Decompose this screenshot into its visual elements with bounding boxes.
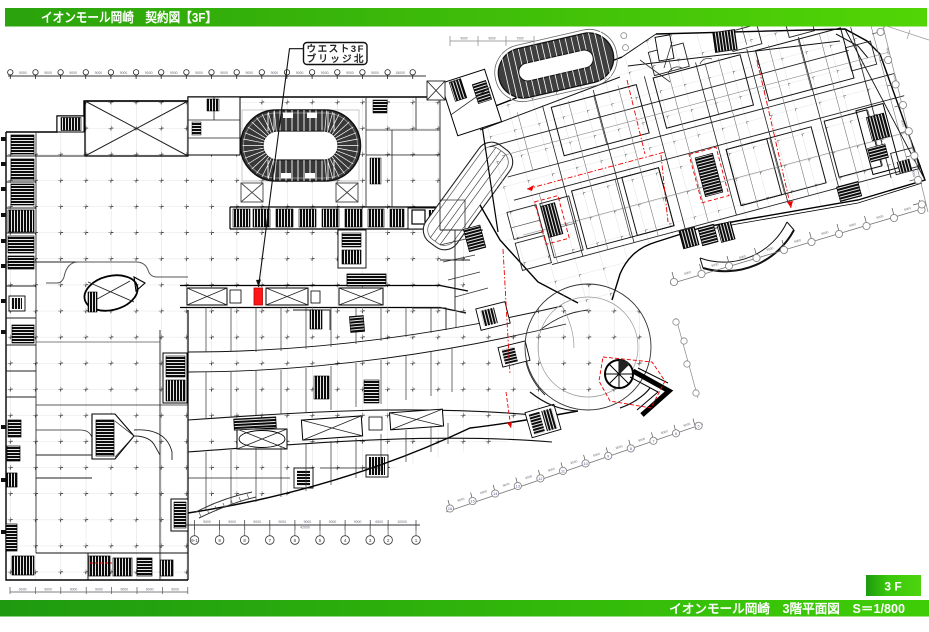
svg-text:9000: 9000: [19, 71, 27, 75]
svg-text:9000: 9000: [253, 520, 261, 524]
svg-text:9000: 9000: [228, 520, 236, 524]
svg-text:9000: 9000: [95, 588, 103, 592]
svg-text:ウエスト3F: ウエスト3F: [307, 44, 364, 55]
svg-text:9000: 9000: [195, 71, 203, 75]
svg-text:9000: 9000: [44, 588, 52, 592]
svg-text:16: 16: [448, 507, 452, 511]
svg-text:9000: 9000: [19, 588, 27, 592]
svg-text:9000: 9000: [304, 520, 312, 524]
svg-text:9000: 9000: [460, 37, 467, 41]
svg-text:9000: 9000: [69, 71, 77, 75]
svg-text:6: 6: [294, 538, 297, 543]
svg-text:11: 11: [561, 469, 565, 473]
svg-text:9000: 9000: [170, 71, 178, 75]
svg-text:9000: 9000: [371, 71, 379, 75]
svg-text:6500: 6500: [375, 520, 383, 524]
svg-text:8: 8: [630, 447, 632, 451]
svg-text:9000: 9000: [171, 588, 179, 592]
svg-text:イオンモール岡崎 契約図【3F】: イオンモール岡崎 契約図【3F】: [41, 10, 217, 25]
svg-text:7: 7: [652, 439, 654, 443]
svg-text:9000: 9000: [146, 588, 154, 592]
svg-text:3: 3: [369, 538, 372, 543]
svg-text:9000: 9000: [220, 71, 228, 75]
svg-text:7: 7: [269, 538, 272, 543]
svg-text:9000: 9000: [44, 71, 52, 75]
svg-text:3 F: 3 F: [884, 580, 901, 594]
svg-text:9000: 9000: [296, 71, 304, 75]
svg-text:9000: 9000: [70, 588, 78, 592]
svg-text:9000: 9000: [354, 520, 362, 524]
svg-text:9000: 9000: [203, 520, 211, 524]
svg-text:9: 9: [607, 454, 609, 458]
svg-text:9000: 9000: [321, 71, 329, 75]
svg-text:イオンモール岡崎 3階平面図 S＝1/800: イオンモール岡崎 3階平面図 S＝1/800: [669, 601, 905, 616]
svg-text:9000: 9000: [120, 71, 128, 75]
svg-text:9000: 9000: [279, 520, 287, 524]
svg-text:1: 1: [415, 538, 418, 543]
svg-text:4: 4: [344, 538, 347, 543]
svg-text:5: 5: [319, 538, 322, 543]
svg-text:9000: 9000: [329, 520, 337, 524]
svg-text:10000: 10000: [397, 520, 407, 524]
svg-text:9000: 9000: [246, 71, 254, 75]
svg-text:9000: 9000: [488, 37, 495, 41]
svg-text:9: 9: [218, 538, 221, 543]
svg-text:7000: 7000: [516, 37, 523, 41]
svg-text:9000: 9000: [95, 71, 103, 75]
svg-text:9000: 9000: [121, 588, 129, 592]
svg-text:15: 15: [470, 500, 474, 504]
svg-text:ブリッジ北: ブリッジ北: [307, 53, 364, 65]
svg-text:9000: 9000: [271, 71, 279, 75]
svg-text:42000: 42000: [300, 526, 310, 530]
svg-text:9-1: 9-1: [191, 538, 198, 543]
svg-text:10: 10: [583, 462, 587, 466]
svg-text:13: 13: [516, 485, 520, 489]
svg-text:14: 14: [493, 492, 497, 496]
svg-text:8: 8: [243, 538, 246, 543]
svg-text:18000: 18000: [395, 71, 405, 75]
svg-text:2: 2: [387, 538, 390, 543]
svg-text:12: 12: [538, 477, 542, 481]
svg-text:5: 5: [698, 424, 700, 428]
svg-text:6: 6: [675, 432, 677, 436]
svg-text:9000: 9000: [346, 71, 354, 75]
svg-text:9000: 9000: [145, 71, 153, 75]
